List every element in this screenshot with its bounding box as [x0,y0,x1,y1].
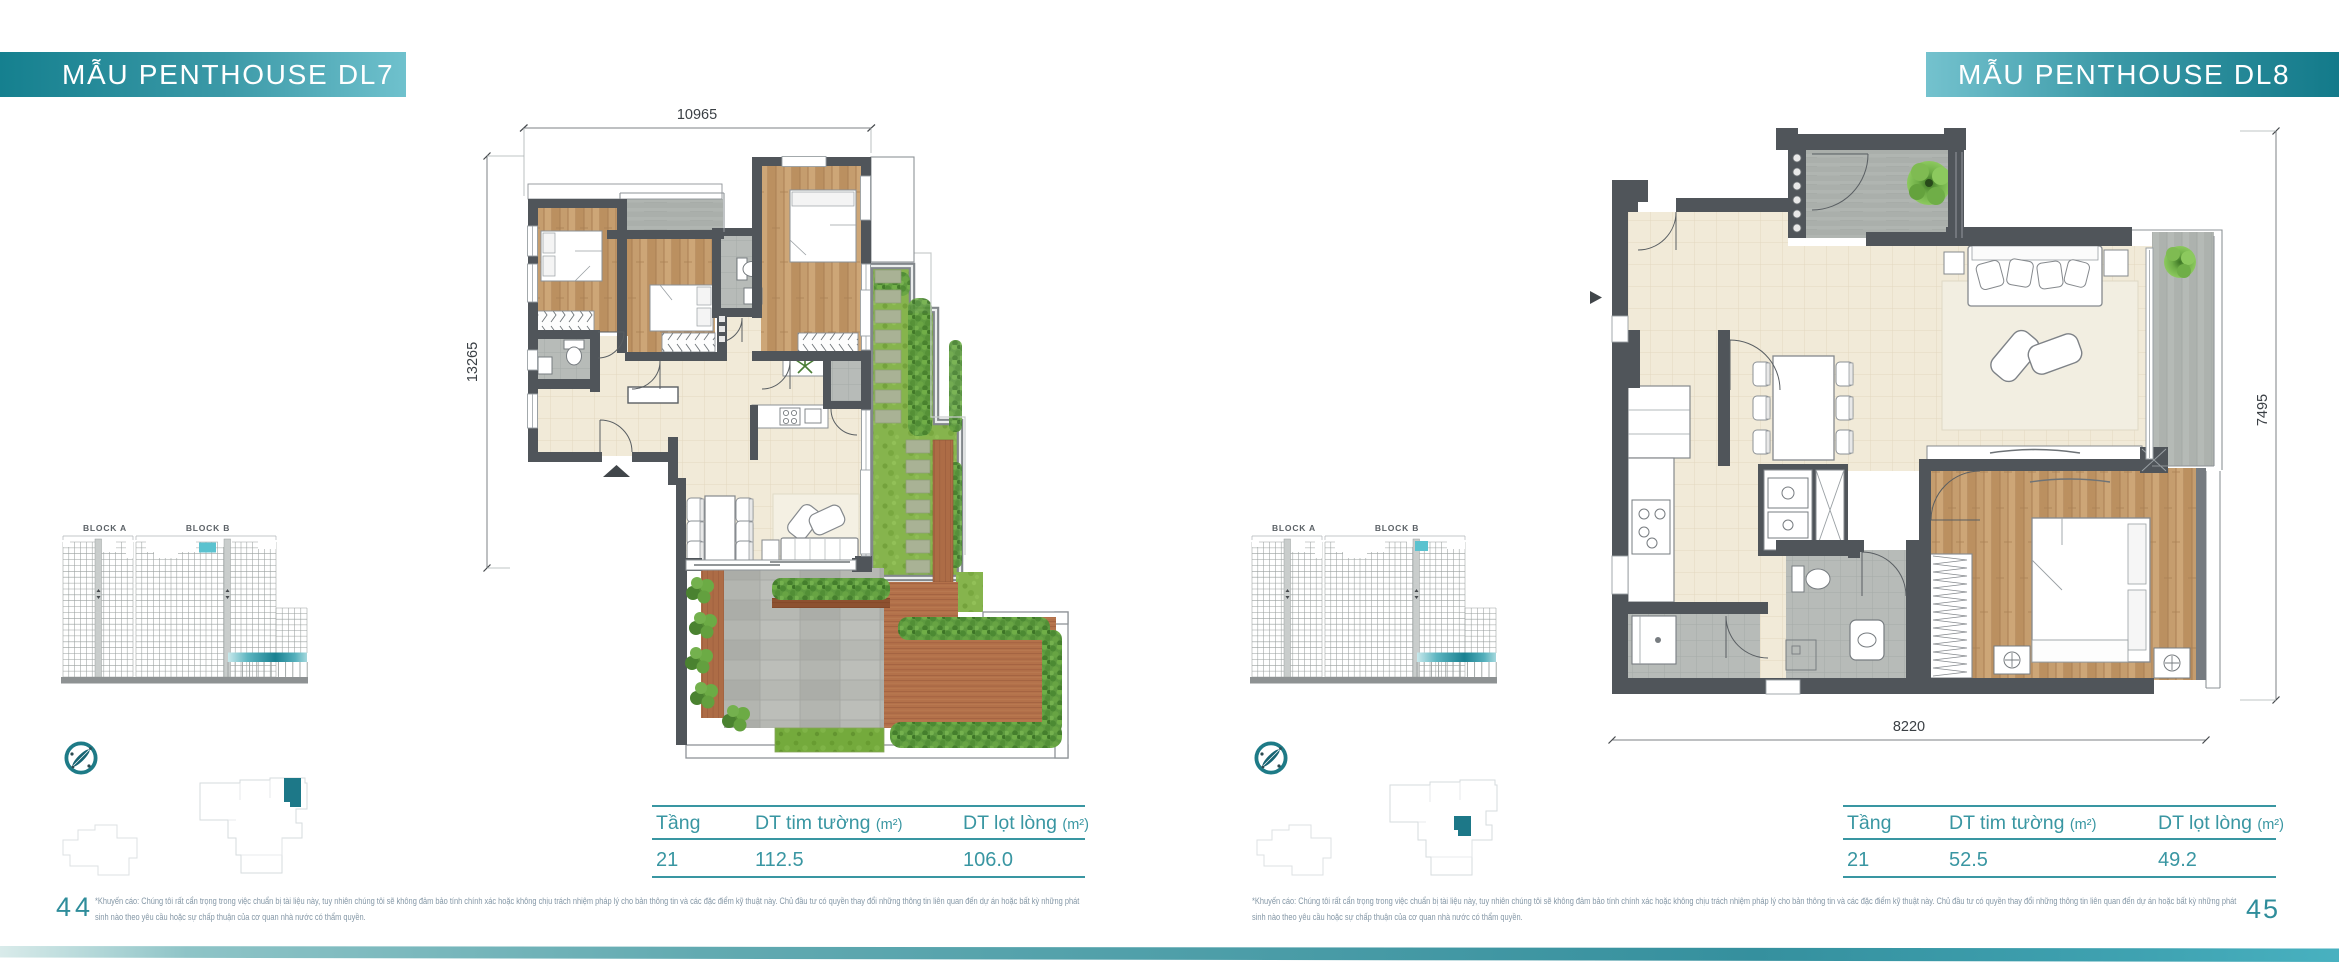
svg-text:BLOCK B: BLOCK B [186,523,230,533]
svg-text:BLOCK A: BLOCK A [83,523,127,533]
svg-text:10965: 10965 [677,107,717,123]
svg-text:13265: 13265 [465,342,481,382]
svg-text:7495: 7495 [2255,394,2271,426]
svg-text:BLOCK A: BLOCK A [1272,523,1316,533]
svg-text:8220: 8220 [1893,719,1925,735]
svg-text:BLOCK B: BLOCK B [1375,523,1419,533]
